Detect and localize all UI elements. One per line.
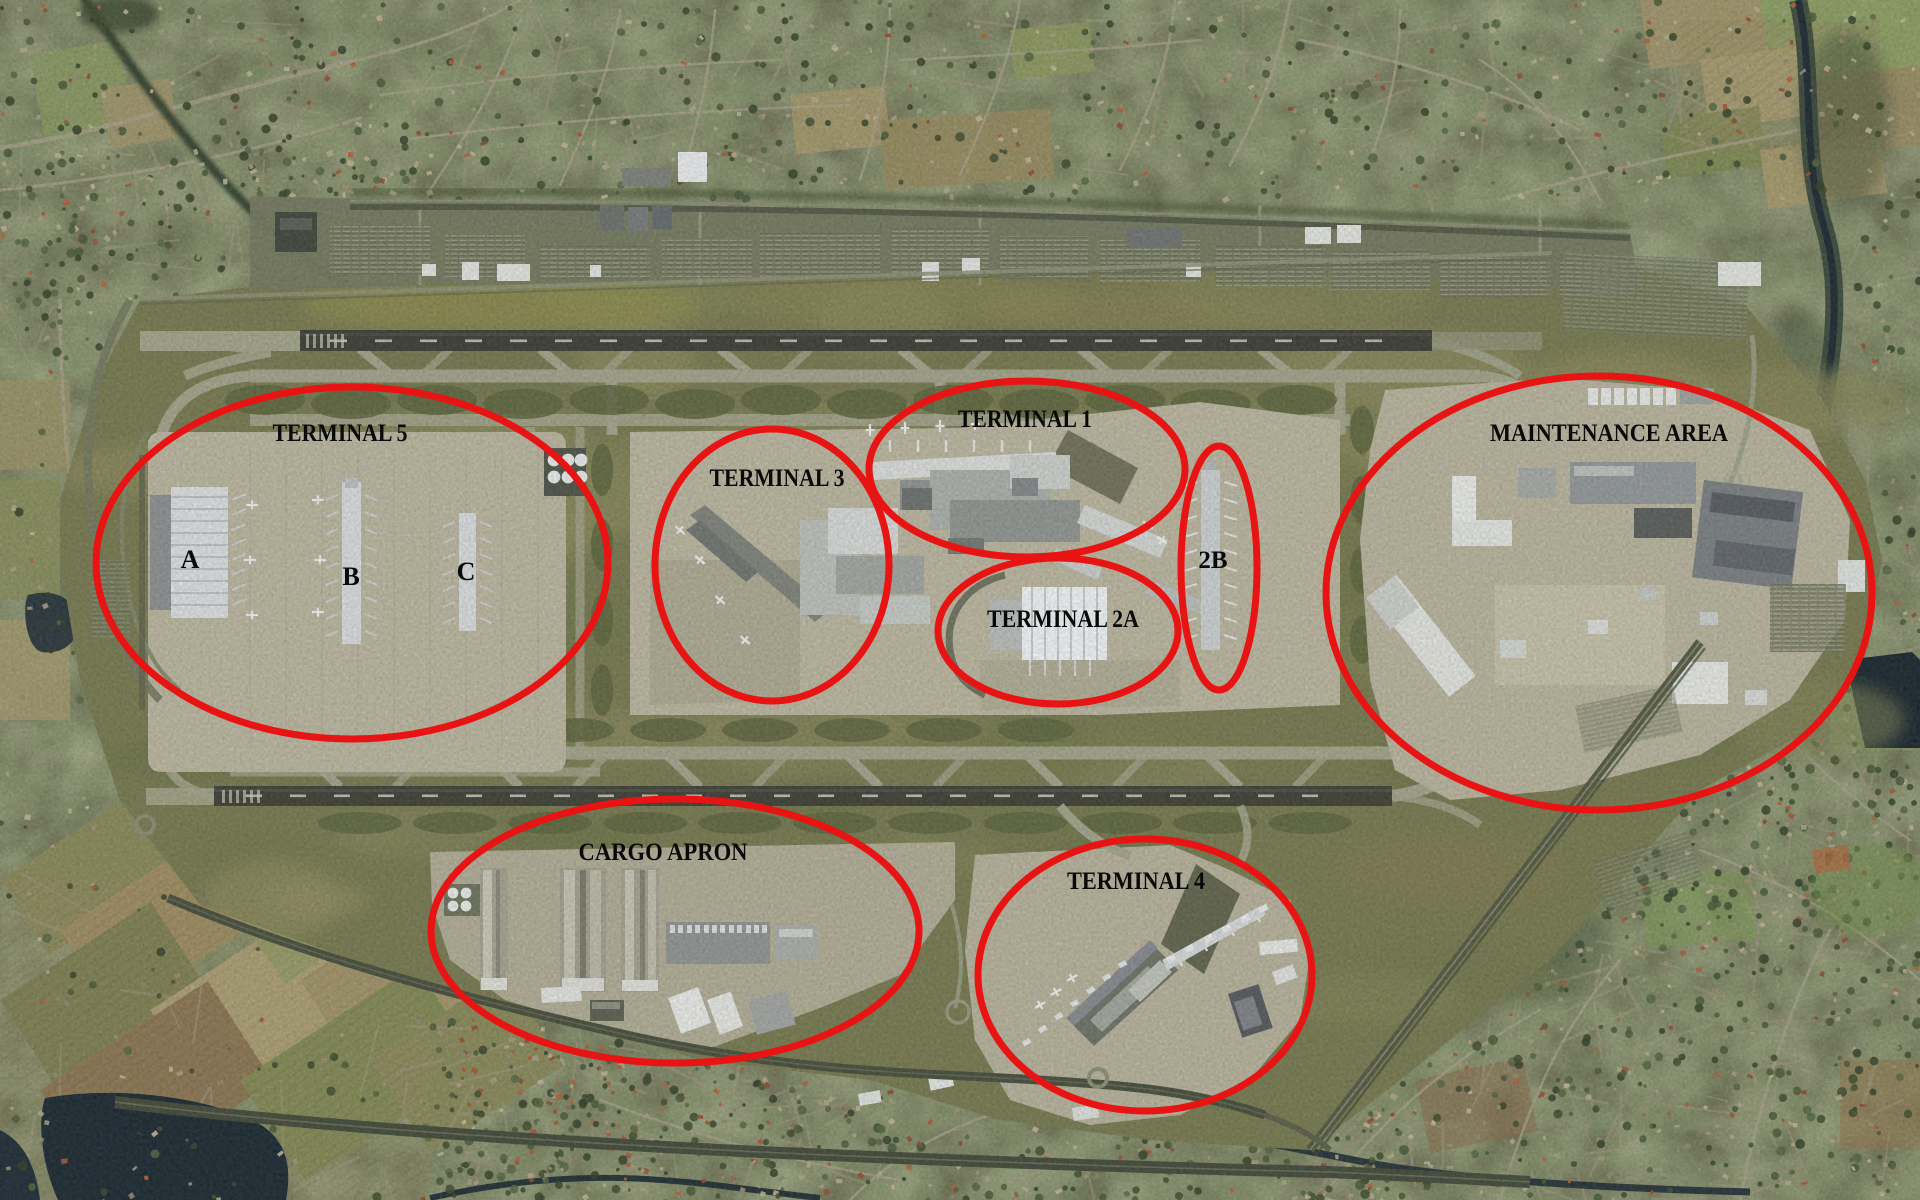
svg-text:MAINTENANCE AREA: MAINTENANCE AREA — [1490, 420, 1728, 447]
svg-text:CARGO APRON: CARGO APRON — [579, 839, 748, 866]
svg-text:TERMINAL 4: TERMINAL 4 — [1067, 868, 1205, 895]
svg-text:B: B — [342, 562, 359, 591]
svg-text:C: C — [457, 557, 476, 586]
svg-text:TERMINAL 1: TERMINAL 1 — [958, 406, 1092, 433]
svg-text:TERMINAL 5: TERMINAL 5 — [273, 420, 408, 447]
svg-text:2B: 2B — [1198, 547, 1227, 574]
svg-text:A: A — [181, 545, 200, 574]
svg-text:TERMINAL 2A: TERMINAL 2A — [987, 606, 1139, 633]
svg-text:TERMINAL 3: TERMINAL 3 — [710, 465, 845, 492]
